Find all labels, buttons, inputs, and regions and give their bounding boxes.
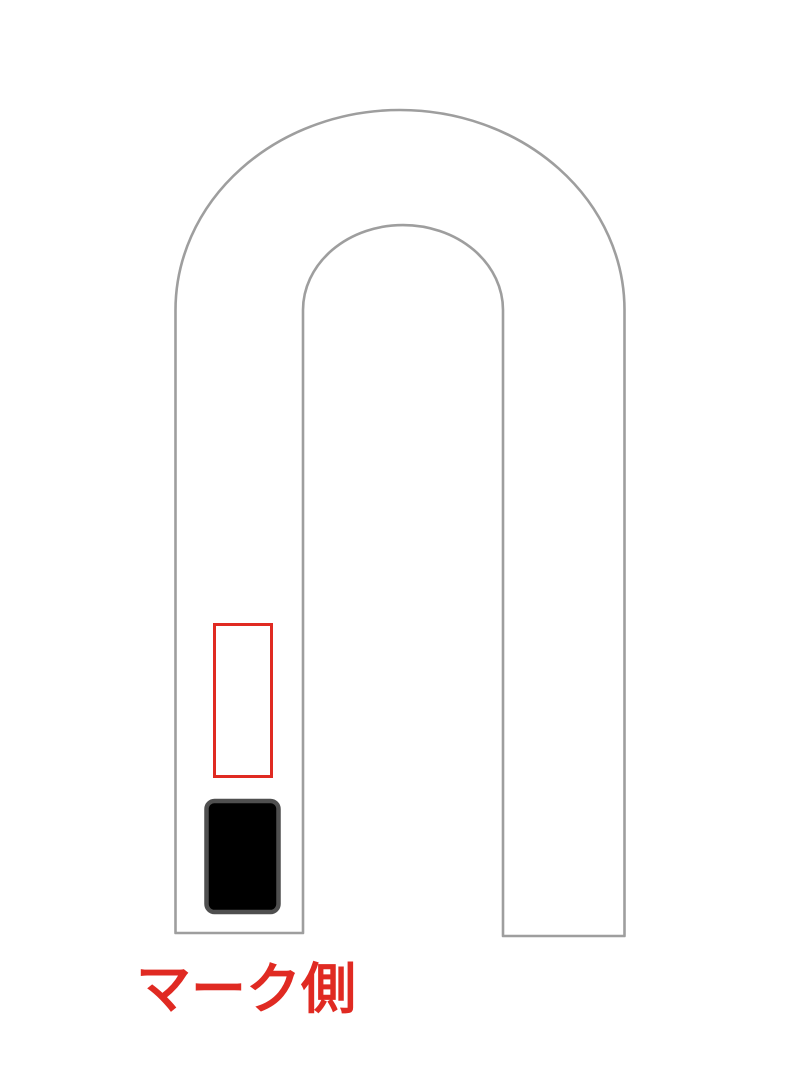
diagram-canvas: マーク側 — [0, 0, 800, 1089]
mark-patch-black-box — [207, 801, 279, 912]
mark-position-red-box — [215, 625, 272, 777]
mark-side-label: マーク側 — [136, 962, 356, 1017]
figure-svg — [0, 0, 800, 1089]
